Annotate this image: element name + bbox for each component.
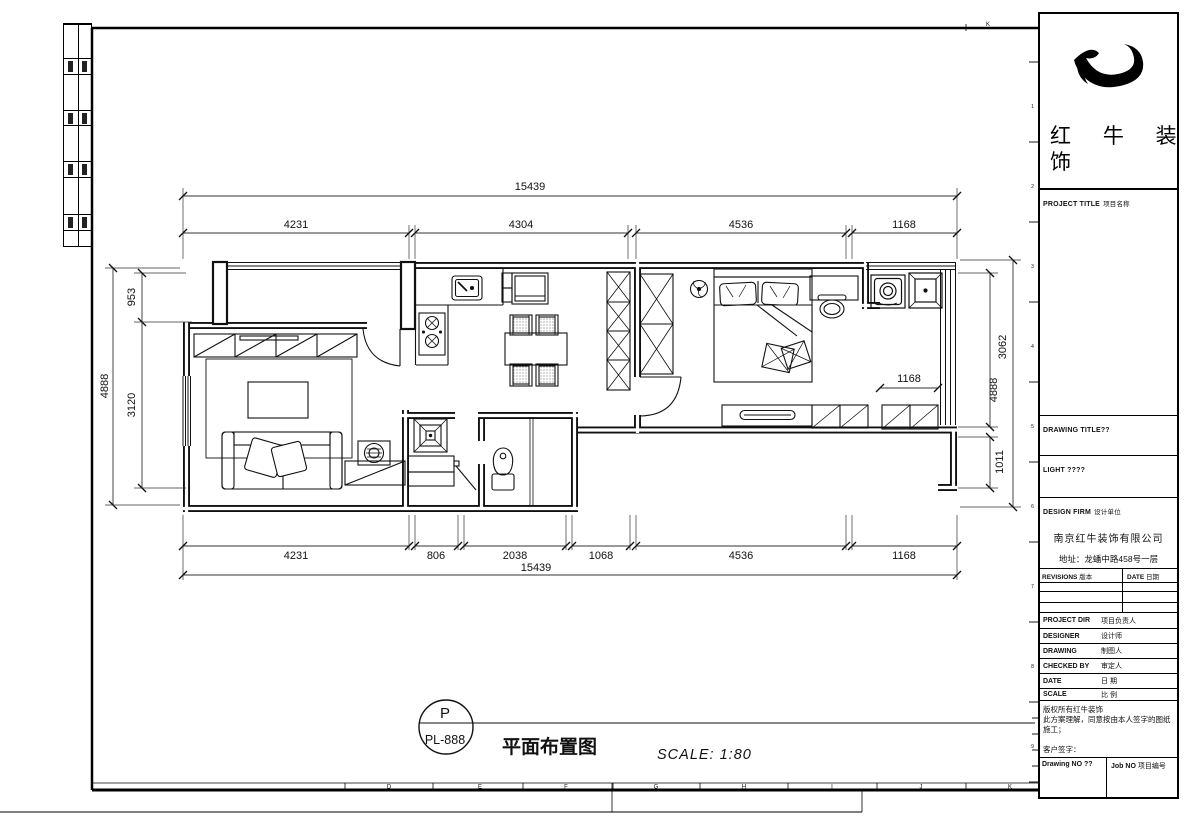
- info-row-designer: DESIGNER设计师: [1038, 628, 1179, 643]
- sofa: [222, 432, 342, 489]
- low-cabinet: [882, 405, 938, 429]
- info-row-date: DATE日 期: [1038, 673, 1179, 688]
- ruler-letter: D: [387, 785, 392, 791]
- revisions-header: REVISIONS 版本 DATE 日期: [1038, 568, 1179, 582]
- info-row-checked-by: CHECKED BY审定人: [1038, 658, 1179, 673]
- svg-text:8: 8: [1031, 664, 1034, 670]
- ruler-letter: H: [742, 785, 746, 791]
- dim-label: 15439: [521, 562, 552, 574]
- living-room: [194, 334, 405, 489]
- dim-label: 3120: [126, 393, 138, 417]
- dimensions: [105, 188, 1021, 580]
- bathroom: [408, 417, 533, 505]
- desk-chair: [818, 295, 846, 318]
- bubble-number: PL-888: [425, 733, 465, 747]
- dining-chair: [510, 364, 532, 386]
- tv-cabinet: [722, 405, 812, 426]
- dim-label: 4536: [729, 219, 753, 231]
- svg-text:6: 6: [1031, 504, 1034, 510]
- toilet: [492, 448, 514, 490]
- bed: [714, 269, 812, 382]
- dim-label: 1068: [589, 550, 613, 562]
- strip-cell: [64, 24, 91, 58]
- svg-text:4: 4: [1031, 344, 1034, 350]
- bedroom-door: [640, 377, 681, 416]
- ruler-letter: E: [478, 785, 482, 791]
- brand-section: 红 牛 装 饰: [1038, 12, 1179, 190]
- ruler-letter: J: [920, 785, 923, 791]
- drawing-title: 平面布置图: [502, 735, 597, 758]
- wall-pillar: [213, 262, 227, 324]
- floor-drain: [909, 273, 942, 308]
- kitchen-sink: [452, 276, 482, 300]
- closet-cabinet: [194, 334, 357, 357]
- bottom-ruler: D E F G H I J K K: [345, 22, 1012, 791]
- dim-label: 4536: [729, 550, 753, 562]
- scale-label: SCALE: 1:80: [657, 747, 752, 763]
- ruler-letter: F: [564, 785, 568, 791]
- coffee-table: [248, 382, 308, 418]
- dining-chair: [536, 315, 558, 335]
- ceiling-fan: [691, 281, 708, 298]
- desk: [810, 276, 858, 300]
- ruler-letter: G: [654, 785, 659, 791]
- vanity: [408, 456, 454, 486]
- revision-row: [1038, 582, 1179, 591]
- customer-sign-label: 客户签字：: [1043, 745, 1174, 755]
- info-row-scale: SCALE比 例: [1038, 688, 1179, 700]
- floor-plan: [183, 262, 957, 512]
- dim-left: [105, 268, 192, 505]
- strip-cell: [64, 161, 91, 177]
- number-section: Drawing NO ?? Job NO 项目编号: [1038, 757, 1179, 797]
- dining-chair: [536, 364, 558, 386]
- dim-label: 806: [427, 550, 445, 562]
- drawing-title-section: DRAWING TITLE??: [1038, 415, 1179, 455]
- ruler-letter: K: [1008, 785, 1012, 791]
- brand-name: 红 牛 装 饰: [1050, 124, 1190, 176]
- svg-text:3: 3: [1031, 264, 1034, 270]
- dim-label: 953: [126, 288, 138, 306]
- bull-logo: [1060, 42, 1155, 127]
- dim-label: 2038: [503, 550, 527, 562]
- plan-canvas: D E F G H I J K K 1 2 3 4 5 6 7 8 9: [0, 0, 1200, 824]
- design-firm-section: DESIGN FIRM设计单位 南京红牛装饰有限公司 地址：龙蟠中路458号一层: [1038, 497, 1179, 568]
- strip-cell: [64, 125, 91, 161]
- revision-row: [1038, 602, 1179, 612]
- dim-label: 1168: [897, 373, 921, 385]
- fridge: [512, 273, 548, 304]
- kitchen-door: [363, 329, 400, 366]
- strip-cell: [64, 110, 91, 125]
- balcony: [871, 273, 942, 308]
- title-block: 红 牛 装 饰 PROJECT TITLE项目名称 DRAWING TITLE?…: [1038, 12, 1179, 799]
- dim-label: 4231: [284, 219, 308, 231]
- dim-bottom: [183, 515, 957, 580]
- bed-throw: [762, 341, 811, 373]
- light-section: LIGHT ????: [1038, 455, 1179, 497]
- dim-label: 1011: [994, 450, 1006, 474]
- strip-cell: [64, 177, 91, 214]
- dim-label: 4304: [509, 219, 533, 231]
- bubble-code: P: [440, 705, 450, 722]
- drawing-title-annotation: P PL-888 平面布置图 SCALE: 1:80: [419, 700, 1035, 763]
- dim-label: 1168: [892, 219, 916, 231]
- drawing-no: Drawing NO ??: [1038, 758, 1107, 797]
- info-row-project-dir: PROJECT DIR项目负责人: [1038, 612, 1179, 628]
- hall-cabinet: [607, 272, 630, 390]
- company-name: 南京红牛装饰有限公司: [1043, 530, 1174, 545]
- revision-row: [1038, 591, 1179, 602]
- strip-cell: [64, 214, 91, 230]
- glass-partition: [530, 417, 533, 505]
- dim-label: 4888: [99, 374, 111, 398]
- copyright-section: 版权所有红牛装饰 此方案理解，同意按由本人签字的图纸施工； 客户签字：: [1038, 700, 1179, 757]
- wall-pillar: [401, 262, 415, 329]
- ruler-letter-top: K: [986, 22, 990, 28]
- dining-set: [505, 315, 567, 386]
- strip-cell: [64, 230, 91, 239]
- index-strip: [63, 23, 92, 247]
- strip-cell: [64, 58, 91, 74]
- svg-text:9: 9: [1031, 744, 1034, 750]
- bedroom: [640, 269, 938, 429]
- svg-text:1: 1: [1031, 104, 1034, 110]
- bath-door: [454, 461, 476, 490]
- svg-text:5: 5: [1031, 424, 1034, 430]
- wardrobe: [640, 274, 673, 374]
- project-title-section: PROJECT TITLE项目名称: [1038, 190, 1179, 415]
- dim-label: 1168: [892, 550, 916, 562]
- stove: [419, 313, 445, 355]
- dining-table: [505, 333, 567, 365]
- low-cabinet: [812, 405, 868, 428]
- right-ruler: 1 2 3 4 5 6 7 8 9: [1029, 62, 1038, 782]
- dim-label: 3062: [997, 335, 1009, 359]
- job-no: Job NO 项目编号: [1107, 758, 1170, 797]
- drawing-sheet: D E F G H I J K K 1 2 3 4 5 6 7 8 9: [0, 0, 1200, 824]
- strip-cell: [64, 74, 91, 110]
- dim-label: 15439: [515, 181, 546, 193]
- dining-chair: [510, 315, 532, 335]
- info-row-drawing: DRAWING制图人: [1038, 643, 1179, 658]
- dim-label: 4231: [284, 550, 308, 562]
- company-address: 地址：龙蟠中路458号一层: [1043, 553, 1174, 565]
- svg-text:2: 2: [1031, 184, 1034, 190]
- svg-text:7: 7: [1031, 584, 1034, 590]
- shower-drain: [414, 419, 447, 452]
- kitchen: [416, 269, 631, 390]
- dim-label: 4888: [988, 378, 1000, 402]
